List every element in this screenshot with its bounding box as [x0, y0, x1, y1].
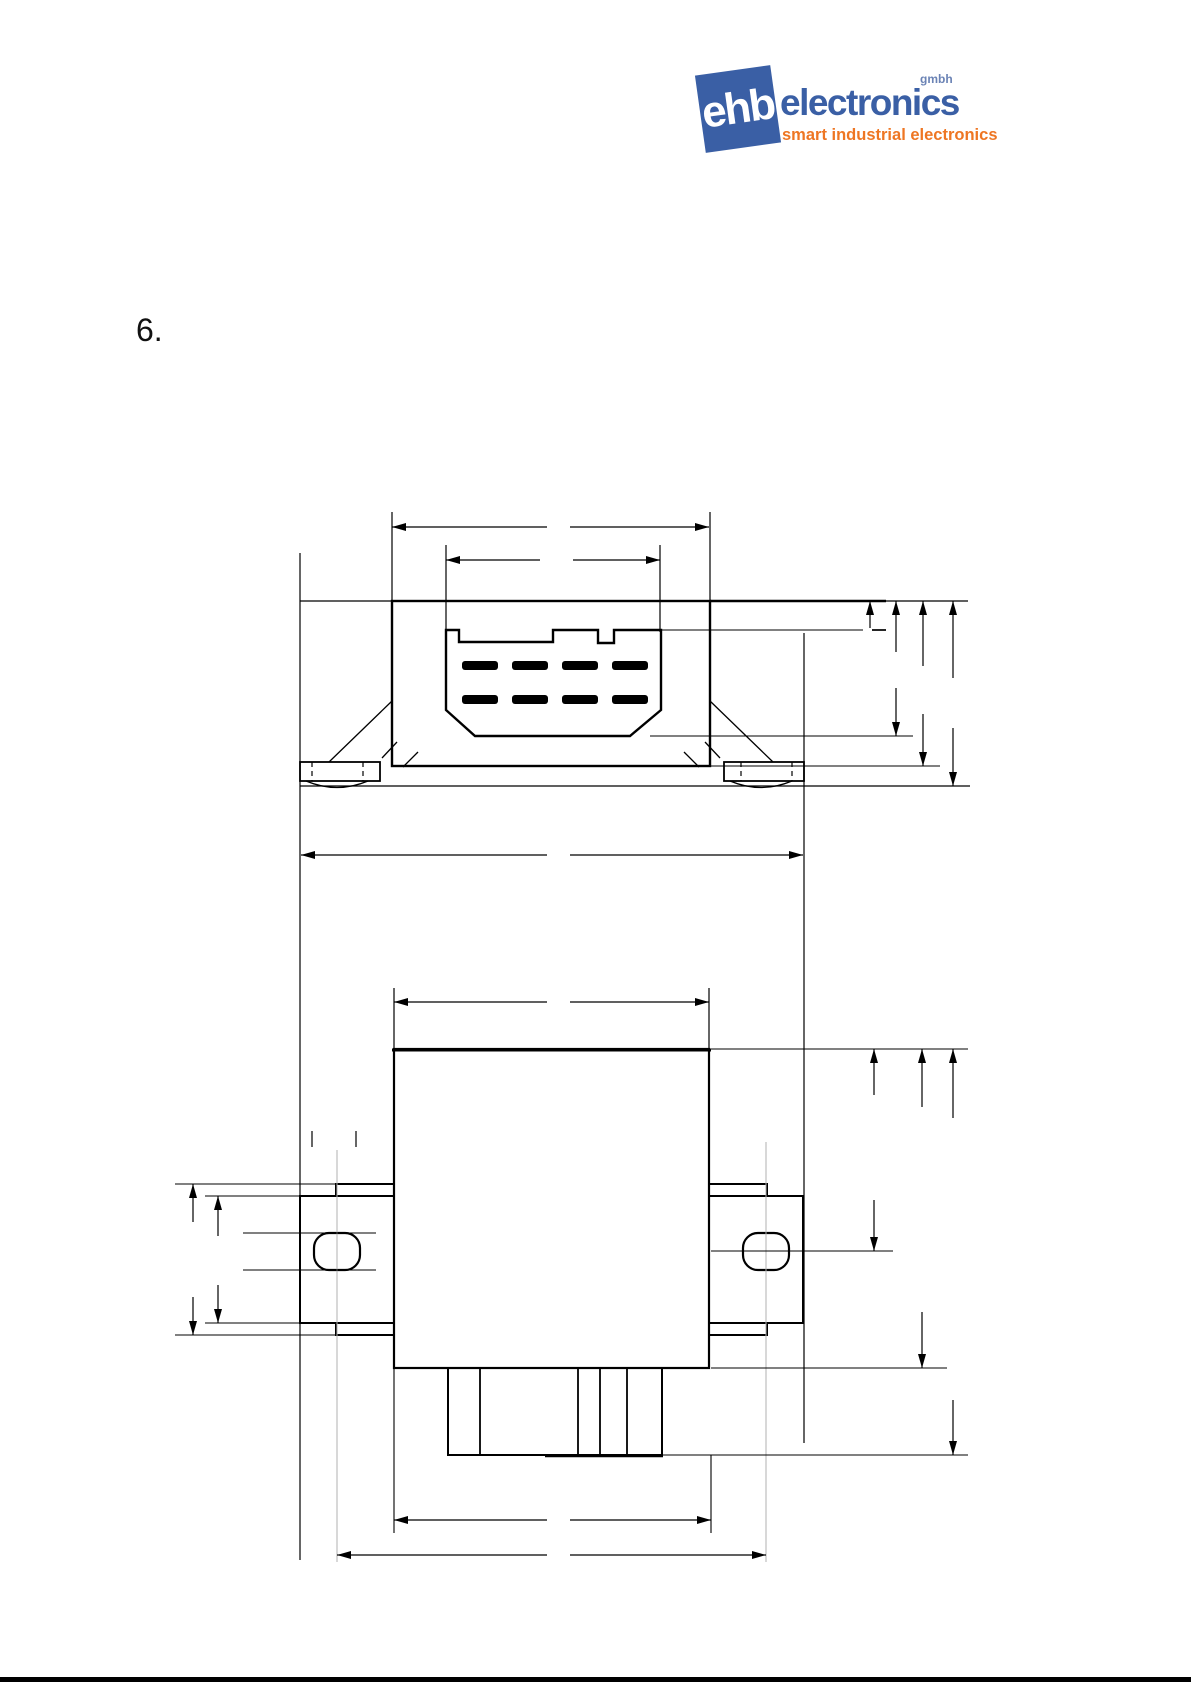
- connector-pins: [462, 661, 648, 704]
- plan-right-dimensions: [874, 1049, 953, 1455]
- dimension-drawing: [0, 0, 1191, 1685]
- hole-centerlines: [337, 1142, 766, 1562]
- plan-bottom-dimensions: [337, 1368, 766, 1555]
- document-page: ehb electronics gmbh smart industrial el…: [0, 0, 1191, 1685]
- module-body-front: [392, 601, 710, 766]
- datum-lines: [300, 553, 804, 1560]
- plan-width-dimension: [394, 988, 709, 1049]
- front-height-dimensions: [870, 601, 953, 786]
- plan-view: [175, 988, 968, 1562]
- footer-cutoff-text: [558, 1680, 618, 1685]
- foot-gussets: [329, 701, 773, 767]
- connector-opening: [446, 630, 661, 736]
- front-view: [300, 512, 970, 788]
- leader-lines-front: [300, 630, 970, 786]
- bottom-connector: [448, 1368, 663, 1456]
- front-width-dimensions: [392, 512, 710, 632]
- mounting-tab-right: [709, 1184, 803, 1335]
- mounting-tab-left: [300, 1184, 394, 1335]
- centerline-ticks: [312, 1131, 356, 1147]
- mounting-foot-left: [300, 762, 380, 788]
- module-body-plan: [394, 1049, 709, 1368]
- plan-left-dimensions: [193, 1184, 218, 1335]
- leader-lines-plan: [175, 1049, 968, 1455]
